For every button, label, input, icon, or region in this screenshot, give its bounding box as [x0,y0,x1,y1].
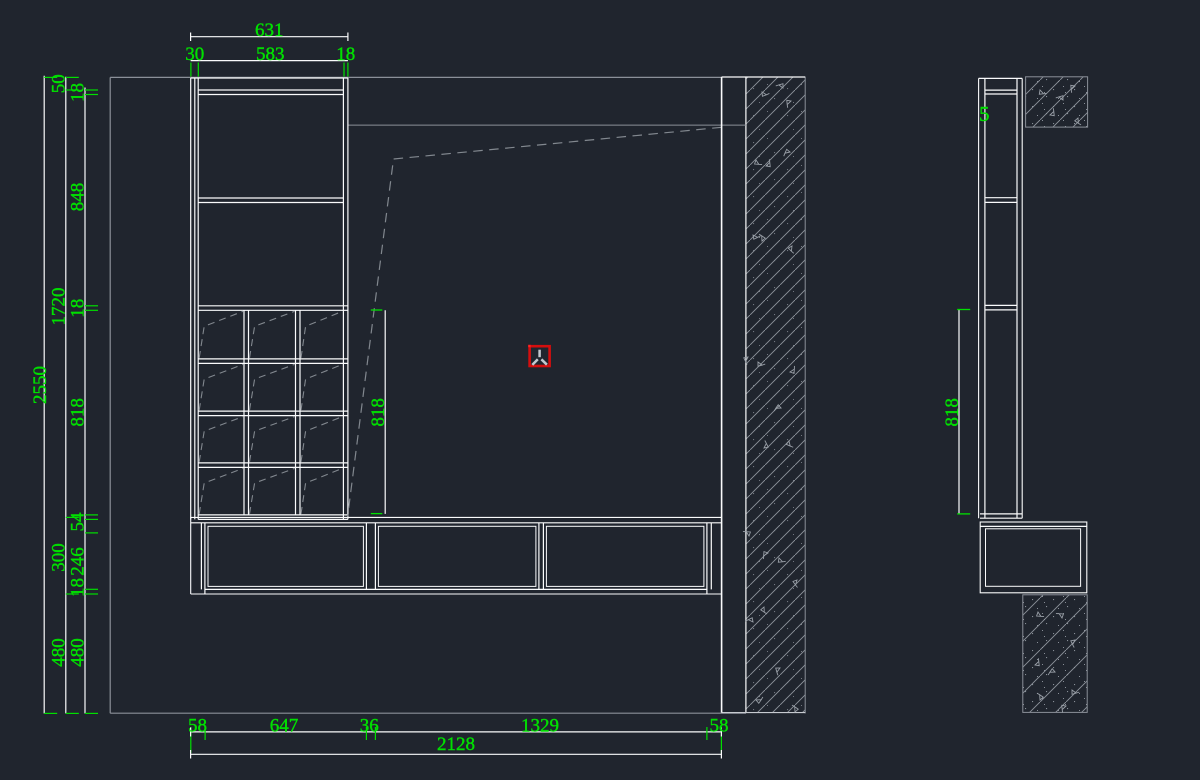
svg-text:36: 36 [360,715,379,736]
svg-text:818: 818 [68,398,89,427]
svg-text:848: 848 [68,183,89,212]
svg-text:2550: 2550 [30,366,51,404]
svg-text:2128: 2128 [437,734,475,755]
svg-text:647: 647 [270,715,299,736]
svg-text:631: 631 [255,20,284,41]
svg-text:50: 50 [48,74,69,93]
svg-text:818: 818 [368,398,389,427]
svg-text:30: 30 [185,44,204,65]
svg-text:18: 18 [68,83,89,102]
svg-text:246: 246 [68,547,89,576]
svg-text:58: 58 [710,715,729,736]
svg-text:54: 54 [68,512,89,532]
svg-text:300: 300 [48,543,69,572]
svg-text:480: 480 [68,638,89,667]
svg-text:18: 18 [68,299,89,318]
svg-text:5: 5 [979,102,990,126]
svg-text:18: 18 [336,44,355,65]
svg-text:480: 480 [48,638,69,667]
svg-text:18: 18 [68,578,89,597]
svg-text:1329: 1329 [521,715,559,736]
svg-text:583: 583 [256,44,285,65]
svg-text:1720: 1720 [48,288,69,326]
svg-text:58: 58 [188,715,207,736]
svg-text:818: 818 [942,398,963,427]
